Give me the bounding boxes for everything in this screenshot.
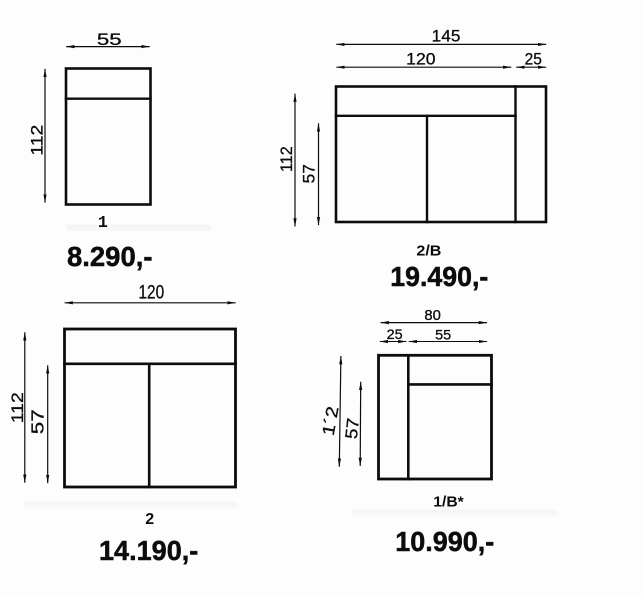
svg-text:57: 57: [342, 417, 363, 440]
svg-text:2: 2: [145, 511, 154, 528]
svg-text:2/B: 2/B: [416, 244, 441, 260]
svg-text:120: 120: [139, 282, 165, 303]
svg-text:112: 112: [8, 392, 27, 423]
svg-text:112: 112: [277, 146, 296, 172]
svg-text:8.290,-: 8.290,-: [67, 241, 153, 272]
svg-text:80: 80: [424, 307, 441, 324]
svg-text:1: 1: [98, 213, 108, 232]
svg-text:55: 55: [435, 327, 451, 343]
svg-text:57: 57: [27, 409, 47, 434]
svg-text:55: 55: [97, 30, 122, 49]
svg-text:25: 25: [387, 326, 403, 342]
svg-text:145: 145: [432, 27, 461, 46]
svg-text:120: 120: [406, 49, 435, 68]
svg-text:25: 25: [525, 49, 542, 68]
svg-text:112: 112: [27, 125, 46, 156]
svg-text:1/B*: 1/B*: [433, 495, 464, 511]
svg-text:19.490,-: 19.490,-: [390, 261, 488, 292]
svg-text:57: 57: [299, 164, 318, 183]
svg-text:10.990,-: 10.990,-: [395, 526, 494, 557]
svg-text:14.190,-: 14.190,-: [99, 535, 198, 566]
